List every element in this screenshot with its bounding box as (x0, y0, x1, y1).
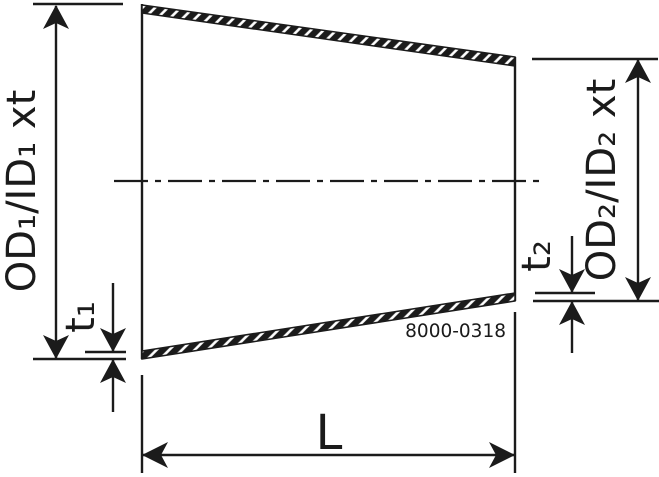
reducer-diagram-svg: OD₁/ID₁ xt t₁ OD₂/ID₂ xt t₂ (0, 0, 659, 477)
t1-dimension: t₁ (58, 283, 126, 412)
t2-label: t₂ (514, 240, 560, 272)
length-label: L (316, 405, 343, 461)
top-wall-hatched (142, 5, 515, 66)
drawing-number: 8000-0318 (405, 321, 506, 342)
od1-label: OD₁/ID₁ xt (0, 90, 45, 293)
t1-label: t₁ (58, 301, 104, 333)
od2-label: OD₂/ID₂ xt (579, 79, 625, 282)
reducer-technical-drawing: OD₁/ID₁ xt t₁ OD₂/ID₂ xt t₂ (0, 0, 659, 477)
